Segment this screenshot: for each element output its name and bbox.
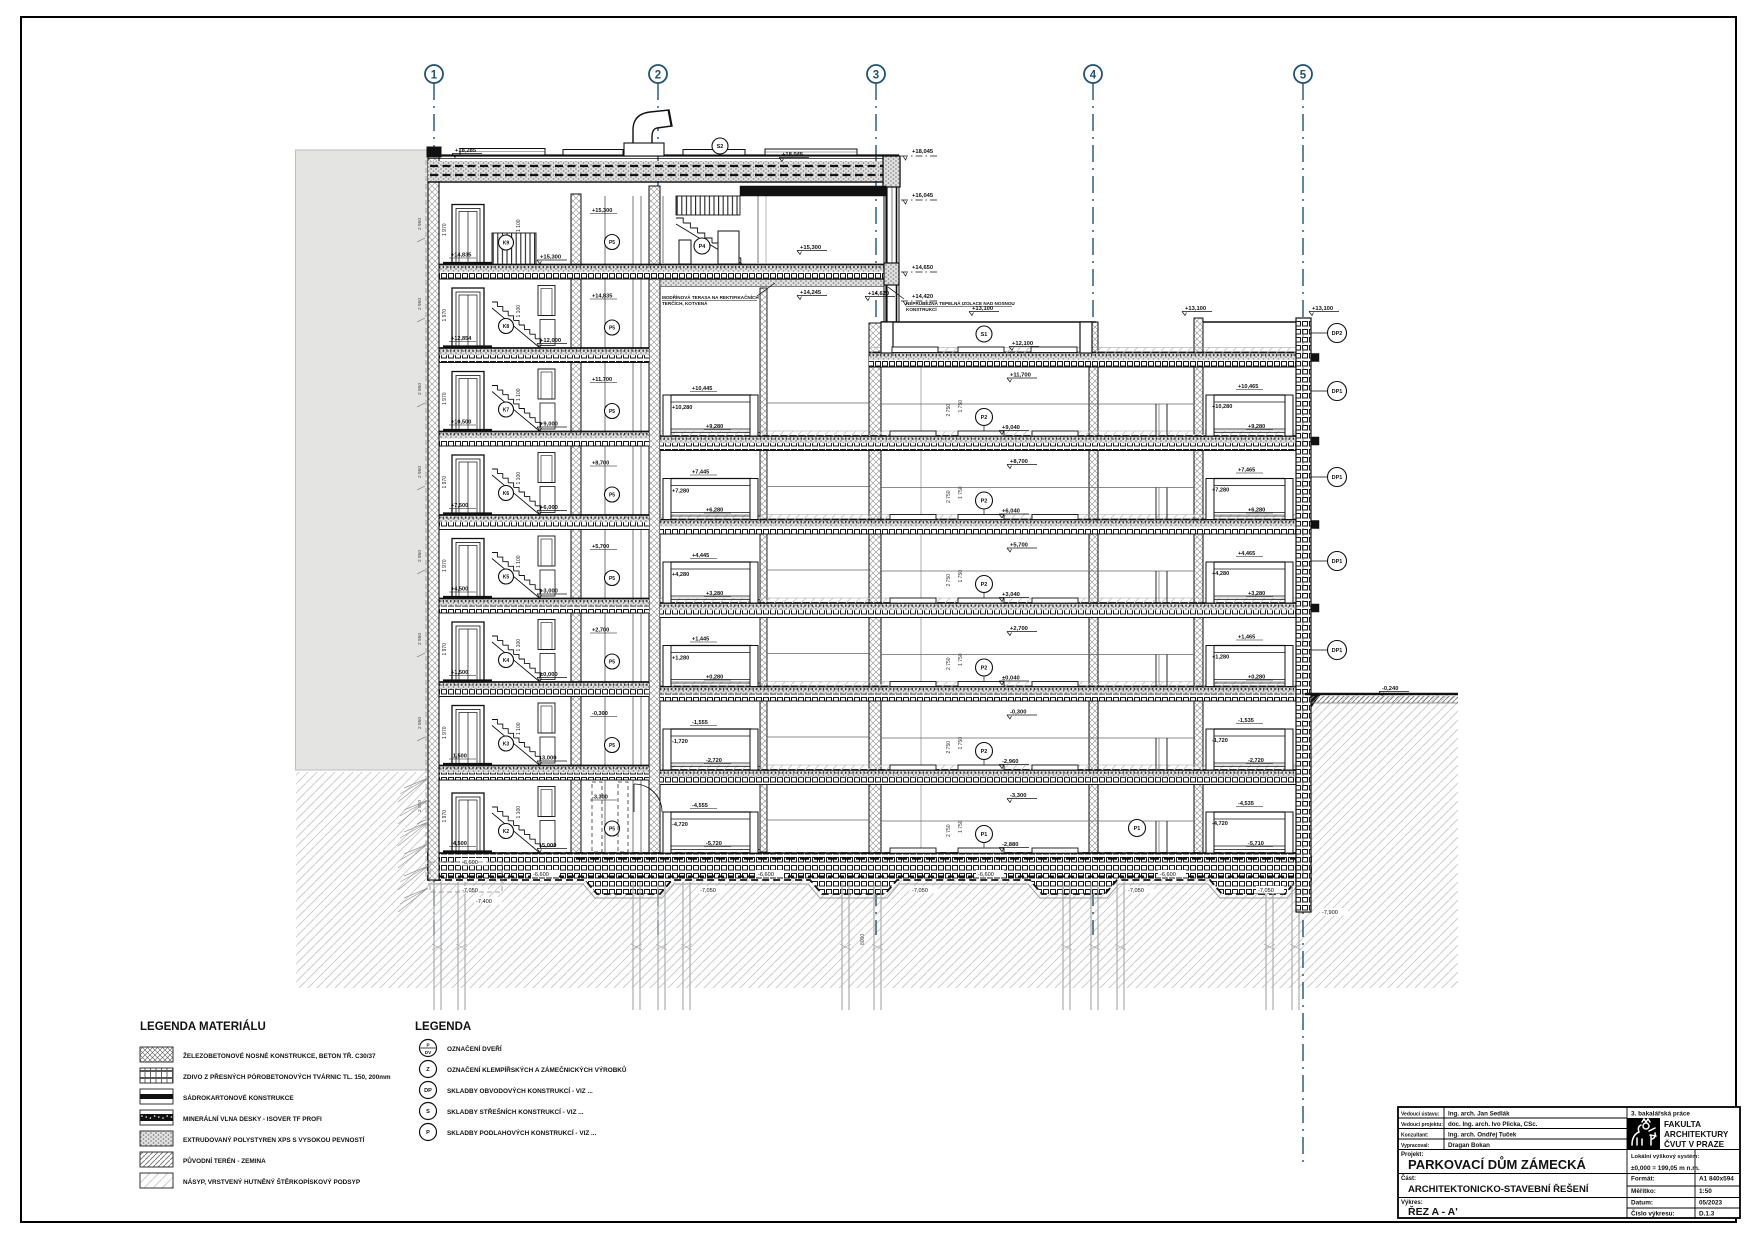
svg-text:2 950: 2 950 <box>417 717 423 729</box>
svg-text:Číslo výkresu:: Číslo výkresu: <box>1631 1209 1675 1218</box>
svg-text:-2,720: -2,720 <box>706 758 722 764</box>
svg-text:+15,300: +15,300 <box>800 245 821 251</box>
svg-text:PARKOVACÍ DŮM ZÁMECKÁ: PARKOVACÍ DŮM ZÁMECKÁ <box>1408 1156 1587 1172</box>
svg-text:-3,000: -3,000 <box>540 756 556 762</box>
svg-text:Měřítko:: Měřítko: <box>1631 1188 1656 1195</box>
svg-text:+16,045: +16,045 <box>912 193 934 199</box>
svg-text:Lokální výškový systém:: Lokální výškový systém: <box>1631 1154 1699 1160</box>
svg-text:+7,280: +7,280 <box>1212 488 1229 494</box>
svg-text:1 100: 1 100 <box>516 555 522 568</box>
svg-text:DP1: DP1 <box>1332 389 1343 395</box>
svg-text:ŘEZ A - A': ŘEZ A - A' <box>1408 1205 1458 1218</box>
svg-text:-4,720: -4,720 <box>672 822 688 828</box>
svg-text:+13,100: +13,100 <box>972 306 993 312</box>
svg-text:1 970: 1 970 <box>442 559 448 572</box>
svg-text:K9: K9 <box>503 241 510 247</box>
svg-text:K5: K5 <box>503 575 510 581</box>
svg-text:2 950: 2 950 <box>417 383 423 395</box>
svg-text:+12,000: +12,000 <box>540 338 561 344</box>
svg-text:-4,535: -4,535 <box>1238 801 1254 807</box>
svg-text:D.1.3: D.1.3 <box>1699 1211 1715 1218</box>
svg-text:doc. Ing. arch. Ivo Plicka, CS: doc. Ing. arch. Ivo Plicka, CSc. <box>1448 1121 1538 1128</box>
svg-text:1 750: 1 750 <box>958 737 964 750</box>
svg-text:+14,620: +14,620 <box>868 291 889 297</box>
svg-text:P2: P2 <box>981 415 988 421</box>
svg-text:+14,835: +14,835 <box>451 253 471 259</box>
svg-text:1: 1 <box>431 70 438 82</box>
svg-text:-2,720: -2,720 <box>1248 758 1264 764</box>
svg-text:P4: P4 <box>699 244 707 250</box>
svg-text:1 750: 1 750 <box>958 653 964 666</box>
svg-text:1 970: 1 970 <box>442 643 448 656</box>
svg-text:MINERÁLNÍ VLNA DESKY - ISOVER: MINERÁLNÍ VLNA DESKY - ISOVER TF PROFI <box>183 1114 322 1123</box>
svg-text:P1: P1 <box>1134 826 1141 832</box>
svg-text:+10,465: +10,465 <box>1238 384 1258 390</box>
svg-text:1 970: 1 970 <box>442 392 448 405</box>
svg-text:+14,245: +14,245 <box>800 290 822 296</box>
svg-text:-2,960: -2,960 <box>1002 759 1018 765</box>
svg-text:-1,535: -1,535 <box>1238 718 1254 724</box>
svg-text:2 750: 2 750 <box>946 741 952 754</box>
svg-text:-1,555: -1,555 <box>692 720 708 726</box>
svg-text:+2,700: +2,700 <box>592 628 609 634</box>
svg-text:1 100: 1 100 <box>516 722 522 735</box>
svg-text:DP1: DP1 <box>1332 475 1343 481</box>
svg-text:+13,100: +13,100 <box>1185 306 1206 312</box>
svg-text:3. bakalářská práce: 3. bakalářská práce <box>1631 1111 1690 1118</box>
svg-text:DP: DP <box>424 1088 432 1094</box>
svg-text:-6,600: -6,600 <box>462 860 478 866</box>
svg-text:+7,500: +7,500 <box>451 503 468 509</box>
svg-text:SKLADBY OBVODOVÝCH KONSTRUKCÍ: SKLADBY OBVODOVÝCH KONSTRUKCÍ - VIZ ... <box>447 1086 593 1095</box>
svg-text:ZDIVO Z PŘESNÝCH PÓROBETONOVÝC: ZDIVO Z PŘESNÝCH PÓROBETONOVÝCH TVÁRNIC … <box>183 1072 391 1081</box>
svg-text:-0,300: -0,300 <box>592 711 608 717</box>
svg-text:+3,000: +3,000 <box>540 589 558 595</box>
svg-text:2 950: 2 950 <box>417 298 423 310</box>
svg-text:+8,700: +8,700 <box>1010 459 1028 465</box>
svg-text:±0,000 = 199,05 m n.m.: ±0,000 = 199,05 m n.m. <box>1631 1165 1700 1172</box>
svg-text:K6: K6 <box>503 491 510 497</box>
svg-text:K2: K2 <box>503 829 510 835</box>
svg-text:P5: P5 <box>609 827 615 833</box>
svg-text:2 750: 2 750 <box>946 657 952 670</box>
svg-text:2 750: 2 750 <box>946 404 952 417</box>
svg-text:+12,854: +12,854 <box>451 336 472 342</box>
svg-text:ČVUT V PRAZE: ČVUT V PRAZE <box>1664 1138 1725 1149</box>
svg-text:+2,700: +2,700 <box>1010 626 1028 632</box>
svg-text:-7,050: -7,050 <box>700 888 716 894</box>
svg-text:1 970: 1 970 <box>442 810 448 823</box>
svg-text:2 950: 2 950 <box>417 466 423 478</box>
svg-text:+10,280: +10,280 <box>1212 404 1232 410</box>
svg-text:Vedoucí projektu:: Vedoucí projektu: <box>1401 1122 1443 1128</box>
svg-text:P5: P5 <box>609 660 615 666</box>
svg-text:-6,600: -6,600 <box>533 872 549 878</box>
svg-text:+10,280: +10,280 <box>672 405 692 411</box>
svg-text:+8,700: +8,700 <box>592 461 609 467</box>
svg-text:LEGENDA: LEGENDA <box>415 1021 471 1033</box>
svg-text:1 100: 1 100 <box>516 472 522 485</box>
svg-text:2 950: 2 950 <box>417 633 423 645</box>
svg-text:NEPRŮBĚŽNÁ TEPELNÁ IZOLACE NAD: NEPRŮBĚŽNÁ TEPELNÁ IZOLACE NAD NOSNOU <box>906 299 1015 306</box>
svg-text:-7,400: -7,400 <box>476 899 492 905</box>
svg-text:1 750: 1 750 <box>958 570 964 583</box>
svg-text:1 970: 1 970 <box>442 726 448 739</box>
svg-text:+9,280: +9,280 <box>1248 424 1265 430</box>
svg-text:-7,050: -7,050 <box>462 888 478 894</box>
svg-text:ARCHITEKTONICKO-STAVEBNÍ ŘEŠEN: ARCHITEKTONICKO-STAVEBNÍ ŘEŠENÍ <box>1408 1183 1589 1195</box>
svg-text:+18,045: +18,045 <box>912 149 934 155</box>
svg-text:DP1: DP1 <box>1332 559 1343 565</box>
svg-text:-4,555: -4,555 <box>692 803 708 809</box>
svg-text:DP2: DP2 <box>1332 331 1343 337</box>
svg-text:-5,000: -5,000 <box>540 843 556 849</box>
svg-text:1 750: 1 750 <box>958 820 964 833</box>
svg-text:Ing. arch. Jan Sedlák: Ing. arch. Jan Sedlák <box>1448 1111 1510 1118</box>
svg-text:Ing. arch. Ondřej Tuček: Ing. arch. Ondřej Tuček <box>1448 1132 1517 1139</box>
svg-text:+11,700: +11,700 <box>592 377 612 383</box>
svg-text:+7,445: +7,445 <box>692 470 709 476</box>
svg-text:P5: P5 <box>609 743 615 749</box>
svg-text:+13,100: +13,100 <box>1312 306 1333 312</box>
svg-text:FAKULTA: FAKULTA <box>1664 1120 1701 1129</box>
svg-text:DV: DV <box>425 1050 432 1055</box>
svg-text:TERČÍCH, KOTVENÁ: TERČÍCH, KOTVENÁ <box>662 299 708 306</box>
svg-text:1 970: 1 970 <box>442 476 448 489</box>
svg-text:1 100: 1 100 <box>516 806 522 819</box>
svg-text:+6,280: +6,280 <box>706 508 723 514</box>
svg-text:1 100: 1 100 <box>516 639 522 652</box>
svg-text:+1,280: +1,280 <box>672 656 689 662</box>
svg-text:1 100: 1 100 <box>516 305 522 318</box>
svg-text:-2,880: -2,880 <box>1002 842 1018 848</box>
svg-text:EXTRUDOVANÝ POLYSTYREN XPS S V: EXTRUDOVANÝ POLYSTYREN XPS S VYSOKOU PEV… <box>183 1135 365 1144</box>
svg-text:P5: P5 <box>609 493 615 499</box>
svg-text:P5: P5 <box>609 409 615 415</box>
svg-text:05/2023: 05/2023 <box>1699 1200 1723 1207</box>
svg-text:1 970: 1 970 <box>442 309 448 322</box>
svg-text:Datum:: Datum: <box>1631 1200 1653 1207</box>
svg-text:+4,465: +4,465 <box>1238 551 1255 557</box>
svg-text:SKLADBY PODLAHOVÝCH KONSTRUKCÍ: SKLADBY PODLAHOVÝCH KONSTRUKCÍ - VIZ ... <box>447 1128 597 1137</box>
svg-text:-3,300: -3,300 <box>592 795 608 801</box>
svg-text:P5: P5 <box>609 240 615 246</box>
svg-text:2 950: 2 950 <box>417 550 423 562</box>
svg-text:1:50: 1:50 <box>1699 1188 1712 1195</box>
svg-text:ARCHITEKTURY: ARCHITEKTURY <box>1664 1130 1729 1139</box>
svg-text:ŽELEZOBETONOVÉ NOSNÉ KONSTRUKC: ŽELEZOBETONOVÉ NOSNÉ KONSTRUKCE, BETON T… <box>183 1051 376 1060</box>
svg-text:1 100: 1 100 <box>516 219 522 232</box>
svg-text:2 950: 2 950 <box>417 218 423 230</box>
svg-text:+9,000: +9,000 <box>540 422 558 428</box>
svg-text:2 750: 2 750 <box>946 574 952 587</box>
svg-text:8000: 8000 <box>860 934 866 945</box>
svg-text:+1,465: +1,465 <box>1238 635 1255 641</box>
svg-text:+12,100: +12,100 <box>1012 341 1033 347</box>
svg-text:K4: K4 <box>503 658 510 664</box>
svg-text:+18,285: +18,285 <box>455 148 477 154</box>
svg-text:Vypracoval:: Vypracoval: <box>1401 1143 1429 1149</box>
svg-text:P2: P2 <box>981 749 988 755</box>
svg-text:MODŘÍNOVÁ TERASA NA REKTIFIKAČ: MODŘÍNOVÁ TERASA NA REKTIFIKAČNÍCH <box>662 293 759 300</box>
svg-text:2 750: 2 750 <box>946 490 952 503</box>
svg-text:OZNAČENÍ DVEŘÍ: OZNAČENÍ DVEŘÍ <box>447 1044 502 1053</box>
svg-text:+3,280: +3,280 <box>1248 591 1265 597</box>
svg-text:+14,420: +14,420 <box>912 294 933 300</box>
svg-text:-7,050: -7,050 <box>1258 888 1274 894</box>
svg-text:±0,040: ±0,040 <box>1002 676 1020 682</box>
svg-text:+0,280: +0,280 <box>1248 675 1265 681</box>
svg-text:-0,240: -0,240 <box>1382 686 1398 692</box>
svg-text:+3,040: +3,040 <box>1002 592 1020 598</box>
svg-text:±0,000: ±0,000 <box>540 672 558 678</box>
svg-text:NÁSYP, VRSTVENÝ HUTNĚNÝ ŠTĚRKO: NÁSYP, VRSTVENÝ HUTNĚNÝ ŠTĚRKOPÍSKOVÝ PO… <box>183 1177 361 1186</box>
svg-text:K8: K8 <box>503 324 510 330</box>
svg-text:+4,445: +4,445 <box>692 553 709 559</box>
svg-text:P1: P1 <box>981 832 988 838</box>
svg-text:Dragan Bokan: Dragan Bokan <box>1448 1142 1490 1149</box>
svg-text:+5,700: +5,700 <box>1010 543 1028 549</box>
svg-text:LEGENDA MATERIÁLU: LEGENDA MATERIÁLU <box>140 1020 266 1033</box>
svg-text:+9,040: +9,040 <box>1002 425 1020 431</box>
svg-text:+1,280: +1,280 <box>1212 655 1229 661</box>
svg-text:+4,280: +4,280 <box>672 572 689 578</box>
svg-text:+14,835: +14,835 <box>592 294 612 300</box>
svg-text:-5,710: -5,710 <box>1248 841 1264 847</box>
svg-text:+5,700: +5,700 <box>592 544 609 550</box>
svg-text:+6,000: +6,000 <box>540 505 558 511</box>
svg-text:+11,700: +11,700 <box>1010 373 1031 379</box>
svg-text:Formát:: Formát: <box>1631 1176 1655 1183</box>
svg-text:+3,280: +3,280 <box>706 591 723 597</box>
svg-text:1 970: 1 970 <box>442 223 448 236</box>
svg-text:-0,300: -0,300 <box>1010 710 1026 716</box>
svg-text:S2: S2 <box>717 144 724 150</box>
svg-text:P5: P5 <box>609 576 615 582</box>
svg-text:-3,300: -3,300 <box>1010 793 1026 799</box>
svg-text:-6,600: -6,600 <box>1160 872 1176 878</box>
svg-text:3: 3 <box>873 70 879 82</box>
svg-text:+9,280: +9,280 <box>706 424 723 430</box>
svg-text:+4,500: +4,500 <box>451 587 468 593</box>
svg-text:1 750: 1 750 <box>958 486 964 499</box>
svg-text:-7,050: -7,050 <box>912 888 928 894</box>
svg-text:+7,280: +7,280 <box>672 489 689 495</box>
svg-text:Z: Z <box>426 1067 430 1073</box>
svg-text:+10,500: +10,500 <box>451 420 471 426</box>
svg-text:-4,500: -4,500 <box>451 841 467 847</box>
svg-text:+6,040: +6,040 <box>1002 509 1020 515</box>
svg-text:-7,900: -7,900 <box>1322 910 1338 916</box>
svg-text:4: 4 <box>1090 70 1097 82</box>
svg-text:-7,050: -7,050 <box>1128 888 1144 894</box>
svg-text:1 750: 1 750 <box>958 400 964 413</box>
svg-text:P2: P2 <box>981 666 988 672</box>
svg-text:5: 5 <box>1300 70 1307 82</box>
svg-text:+1,500: +1,500 <box>451 670 468 676</box>
svg-text:-1,720: -1,720 <box>1212 738 1228 744</box>
svg-text:-1,720: -1,720 <box>672 739 688 745</box>
svg-text:P5: P5 <box>609 326 615 332</box>
svg-text:+4,280: +4,280 <box>1212 571 1229 577</box>
svg-text:P: P <box>426 1130 430 1136</box>
svg-text:+10,445: +10,445 <box>692 386 712 392</box>
svg-text:+15,300: +15,300 <box>592 208 612 214</box>
svg-text:Část:: Část: <box>1401 1175 1416 1182</box>
svg-text:K7: K7 <box>503 408 510 414</box>
svg-text:+18,045: +18,045 <box>782 152 804 158</box>
svg-text:+1,445: +1,445 <box>692 637 709 643</box>
svg-text:Konzultant:: Konzultant: <box>1401 1133 1429 1139</box>
svg-text:1 100: 1 100 <box>516 388 522 401</box>
svg-text:KONSTRUKCÍ: KONSTRUKCÍ <box>906 305 937 312</box>
svg-text:DP1: DP1 <box>1332 648 1343 654</box>
svg-text:S1: S1 <box>981 332 988 338</box>
svg-text:SÁDROKARTONOVÉ KONSTRUKCE: SÁDROKARTONOVÉ KONSTRUKCE <box>183 1093 294 1102</box>
svg-text:P: P <box>426 1043 429 1048</box>
svg-text:+6,280: +6,280 <box>1248 508 1265 514</box>
svg-text:+14,650: +14,650 <box>912 265 933 271</box>
svg-text:P2: P2 <box>981 582 988 588</box>
svg-text:-5,720: -5,720 <box>706 841 722 847</box>
svg-text:A1 840x594: A1 840x594 <box>1699 1176 1734 1183</box>
svg-text:-6,600: -6,600 <box>758 872 774 878</box>
svg-text:S: S <box>426 1109 430 1115</box>
svg-text:Vedoucí ústavu:: Vedoucí ústavu: <box>1401 1112 1440 1118</box>
svg-text:2: 2 <box>655 70 661 82</box>
svg-text:-4,720: -4,720 <box>1212 821 1228 827</box>
svg-text:P2: P2 <box>981 499 988 505</box>
svg-text:+7,465: +7,465 <box>1238 468 1255 474</box>
svg-text:-6,600: -6,600 <box>978 872 994 878</box>
svg-text:+0,280: +0,280 <box>706 675 723 681</box>
svg-text:2 750: 2 750 <box>946 824 952 837</box>
svg-text:+15,300: +15,300 <box>540 255 561 261</box>
svg-text:-1,500: -1,500 <box>451 754 467 760</box>
svg-text:SKLADBY STŘEŠNÍCH KONSTRUKCÍ -: SKLADBY STŘEŠNÍCH KONSTRUKCÍ - VIZ ... <box>447 1107 584 1116</box>
svg-text:K3: K3 <box>503 742 510 748</box>
